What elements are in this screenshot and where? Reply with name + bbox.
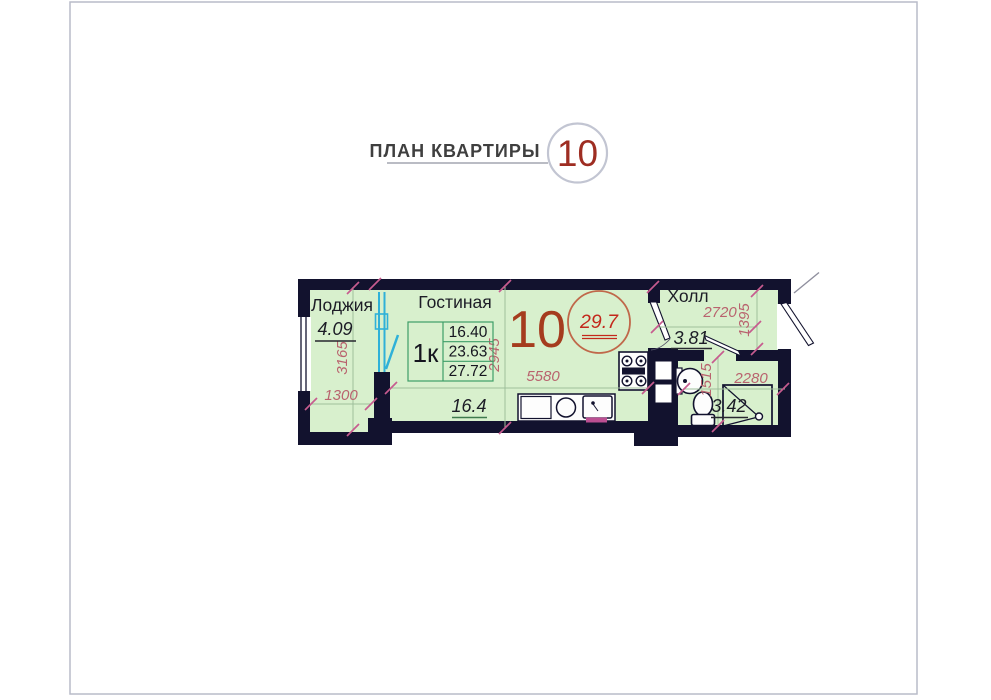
table-living-area: 16.40 (449, 324, 488, 341)
label-loggia: Лоджия (311, 295, 373, 315)
kitchen-counter-icon (518, 394, 615, 423)
area-living: 16.4 (451, 396, 486, 416)
area-loggia: 4.09 (317, 319, 352, 339)
total-area-value: 29.7 (579, 311, 619, 333)
dim-bath-depth: 1515 (698, 363, 715, 397)
wall-bath-left (678, 350, 704, 361)
dim-bath-width: 2280 (733, 370, 768, 387)
dim-hall-depth: 1395 (736, 303, 753, 337)
label-hall: Холл (667, 286, 708, 306)
dim-living-depth: 2945 (486, 338, 503, 373)
dim-loggia-depth: 3165 (334, 341, 351, 375)
wall-living-bottom (386, 421, 650, 433)
wall-hall-stub (648, 290, 660, 303)
wall-bath-right (736, 350, 778, 361)
dim-loggia-width: 1300 (324, 387, 358, 404)
floor-plan-canvas: ПЛАН КВАРТИРЫ 10 (0, 0, 991, 700)
label-living: Гостиная (418, 292, 491, 312)
apartment-number: 10 (557, 133, 598, 174)
wall-top (298, 279, 791, 290)
wall-left-upper (298, 279, 310, 317)
area-bathroom: 3.42 (711, 396, 746, 416)
dim-living-width: 5580 (526, 368, 560, 385)
table-flat-area: 23.63 (449, 344, 488, 361)
plan-apartment-number: 10 (508, 301, 566, 359)
table-flat-type: 1к (413, 338, 439, 368)
wall-right-top (778, 279, 791, 305)
page: ПЛАН КВАРТИРЫ 10 (0, 0, 991, 700)
loggia-window-icon (297, 317, 311, 391)
sink-tap-detail (586, 418, 607, 423)
stove-icon (619, 352, 648, 390)
table-total-area: 27.72 (449, 363, 488, 380)
dim-hall-width: 2720 (702, 304, 737, 321)
area-hall: 3.81 (673, 328, 708, 348)
wall-bottom-tab (634, 433, 678, 446)
page-title: ПЛАН КВАРТИРЫ (370, 141, 541, 161)
